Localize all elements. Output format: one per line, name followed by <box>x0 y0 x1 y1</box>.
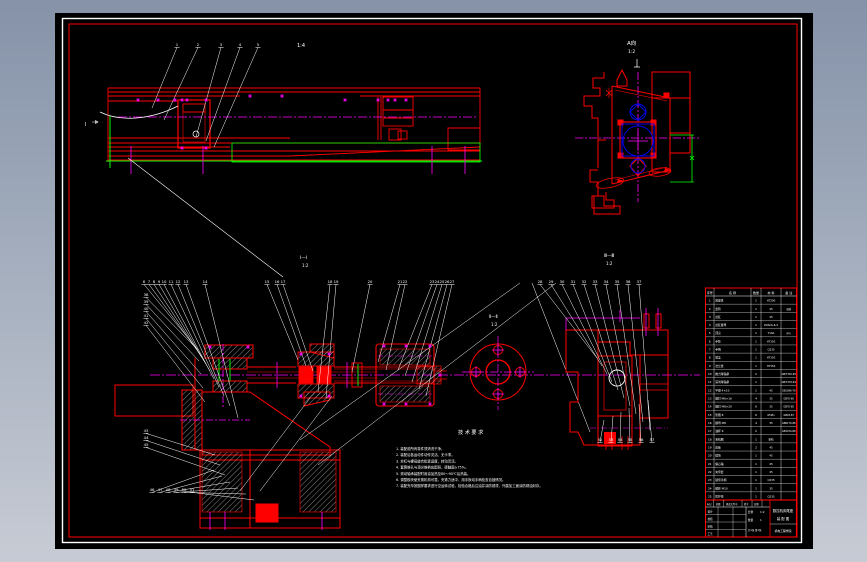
bom-cell-name: 套筒 <box>715 307 721 311</box>
bom-cell-name: 丝杠 <box>715 315 721 319</box>
organization: 机电工程学院 <box>775 529 792 533</box>
bom-cell-name: 尾座体 <box>715 299 724 303</box>
bom-cell-name: 推力球轴承 <box>715 372 729 376</box>
center-marker <box>327 352 331 356</box>
balloon-number: 42 <box>144 320 149 325</box>
bom-cell-qty: 6 <box>755 405 757 409</box>
bom-header: 材 料 <box>768 290 775 295</box>
balloon-number: 33 <box>593 279 598 284</box>
bom-cell-name: 平键 4×10 <box>715 388 729 392</box>
bom-cell-material: 45 <box>769 307 773 311</box>
balloon-number: 48 <box>166 487 171 492</box>
bom-cell-name: 深沟球轴承 <box>715 380 729 384</box>
bom-cell-name: 防护罩 <box>715 494 724 498</box>
bom-cell-material: Q235 <box>768 348 775 352</box>
note-line: 1. 装配前所有零件须清洗干净。 <box>396 446 444 451</box>
bom-cell-qty: 1 <box>755 388 757 392</box>
title-block-top-label: 处数 <box>716 502 721 506</box>
sheet-count: 共1张 第1张 <box>748 528 762 532</box>
bom-cell-qty: 1 <box>755 364 757 368</box>
balloon-number: 20 <box>368 279 373 284</box>
title-block-top-label: 日期 <box>754 502 759 506</box>
bom-cell-material: 45 <box>769 315 773 319</box>
bom-cell-no: 17 <box>708 429 712 433</box>
center-marker <box>343 98 347 102</box>
balloon-number: 54 <box>618 437 623 442</box>
bom-cell-qty: 1 <box>755 348 757 352</box>
bom-cell-qty: 2 <box>755 429 757 433</box>
bom-cell-note: GB70-85 <box>784 398 795 401</box>
bom-header: 数量 <box>753 290 759 295</box>
balloon-number: 11 <box>169 279 174 284</box>
bom-cell-material: 毛毡 <box>768 437 774 441</box>
balloon-number: 50 <box>182 487 187 492</box>
bom-cell-no: 1 <box>709 299 711 303</box>
balloon-number: 36 <box>626 279 631 284</box>
bom-cell-qty: 2 <box>755 372 757 376</box>
center-marker <box>404 98 408 102</box>
bom-cell-no: 15 <box>708 413 712 417</box>
bom-cell-note: 调质 <box>786 307 791 311</box>
center-marker <box>280 94 284 98</box>
bom-cell-name: 螺柱 M10 <box>715 486 728 490</box>
center-marker <box>382 344 386 348</box>
balloon-number: 30 <box>560 279 565 284</box>
balloon-number: 10 <box>162 279 167 284</box>
note-line: 5. 滚动轴承装配时用油加热至80～90℃后热装。 <box>396 471 470 476</box>
bom-cell-qty: 1 <box>755 323 757 327</box>
balloon-number: 44 <box>144 435 149 440</box>
bom-cell-qty: 6 <box>755 413 757 417</box>
bom-cell-material: 45 <box>769 454 773 458</box>
balloon-number: 56 <box>639 437 644 442</box>
bom-cell-qty: 4 <box>755 421 757 425</box>
bom-cell-material: 35 <box>769 405 773 409</box>
balloon-number: 18 <box>328 279 333 284</box>
note-line: 2. 装配后各运动件动作灵活、无卡滞。 <box>396 452 455 457</box>
balloon-number: 16 <box>275 279 280 284</box>
balloon-number: 39 <box>144 299 149 304</box>
center-marker <box>428 402 432 406</box>
title-block-role: 审核 <box>708 525 714 529</box>
view-flange-label: Ⅱ—Ⅱ <box>489 314 498 320</box>
bom-header: 名 称 <box>729 290 736 295</box>
bom-cell-name: 毛毡圈 <box>715 437 724 441</box>
center-marker <box>404 344 408 348</box>
bom-cell-qty: 1 <box>755 380 757 384</box>
bom-cell-qty: 1 <box>755 462 757 466</box>
bom-cell-no: 22 <box>708 470 712 474</box>
view-b-scale: 1:2 <box>606 261 613 266</box>
title-block-role: 校核 <box>708 517 714 521</box>
bom-cell-qty: 1 <box>755 478 757 482</box>
bom-cell-no: 6 <box>709 339 711 343</box>
bom-cell-qty: 2 <box>755 445 757 449</box>
bom-cell-no: 18 <box>708 437 712 441</box>
center-marker <box>438 373 442 377</box>
bom-cell-name: 油杯 6 <box>715 429 723 433</box>
bom-cell-note: 淬火 <box>786 331 791 335</box>
bom-cell-no: 24 <box>708 486 712 490</box>
center-marker <box>382 402 386 406</box>
balloon-number: 53 <box>609 437 614 442</box>
bom-cell-no: 23 <box>708 478 712 482</box>
balloon-number: 49 <box>174 487 179 492</box>
bom-cell-note: GB93-87 <box>784 414 795 417</box>
balloon-number: 37 <box>637 279 642 284</box>
center-marker <box>393 98 397 102</box>
bom-cell-material: Q235 <box>768 494 775 498</box>
balloon-number: 41 <box>144 313 149 318</box>
bom-cell-no: 4 <box>709 323 711 327</box>
view-flange-scale: 1:2 <box>491 322 498 327</box>
bom-cell-no: 16 <box>708 421 712 425</box>
bom-header: 备 注 <box>785 290 792 295</box>
bom-cell-note: GB6170-86 <box>782 422 796 425</box>
center-marker <box>156 98 160 102</box>
note-line: 4. 套筒锥孔与顶尖锥柄应配研，接触面≥75%。 <box>396 465 468 470</box>
bom-cell-no: 21 <box>708 462 712 466</box>
balloon-number: 29 <box>549 279 554 284</box>
center-marker <box>173 98 177 102</box>
balloon-number: 14 <box>203 279 208 284</box>
bom-cell-no: 19 <box>708 445 712 449</box>
title-block-role: 工艺 <box>708 532 714 536</box>
bom-cell-material: 35 <box>769 421 773 425</box>
bom-cell-material: 45 <box>769 388 773 392</box>
bom-cell-qty: 1 <box>755 454 757 458</box>
bom-cell-note: GB70-85 <box>784 406 795 409</box>
center-marker <box>180 146 184 150</box>
center-marker <box>246 345 250 349</box>
bom-cell-no: 25 <box>708 494 712 498</box>
notes-title: 技术要求 <box>458 428 485 436</box>
center-marker <box>404 402 408 406</box>
qty-value: 1 <box>760 518 762 522</box>
bom-cell-material: Q235 <box>768 478 775 482</box>
view-a-label: A向 <box>627 39 636 47</box>
bom-cell-qty: 1 <box>755 299 757 303</box>
bom-cell-no: 8 <box>709 356 711 360</box>
bom-cell-material: HT150 <box>767 339 776 343</box>
center-marker <box>248 94 252 98</box>
center-marker <box>208 345 212 349</box>
bom-cell-note: GB/T301-95 <box>782 373 797 376</box>
note-line: 7. 装配完毕按图样要求进行空运转试验，检验合格后注油并涂防锈漆，外露加工面涂防… <box>396 483 543 488</box>
view-a-scale: 1:2 <box>628 49 635 55</box>
bom-cell-qty: 1 <box>755 339 757 343</box>
center-marker <box>376 98 380 102</box>
center-marker <box>299 352 303 356</box>
bom-cell-name: 螺钉 M8×20 <box>715 405 732 409</box>
balloon-number: 12 <box>176 279 181 284</box>
qty-label: 数量 <box>748 518 754 522</box>
bom-cell-no: 11 <box>708 380 712 384</box>
bom-cell-material: HT150 <box>767 356 776 360</box>
bom-cell-material: 45 <box>769 470 773 474</box>
bom-cell-qty: 1 <box>755 470 757 474</box>
bom-cell-no: 12 <box>708 388 712 392</box>
bom-cell-name: 手轮 <box>715 339 721 343</box>
center-marker <box>327 394 331 398</box>
bom-cell-no: 3 <box>709 315 711 319</box>
bom-cell-qty: 1 <box>755 315 757 319</box>
view-main-scale: 1:2 <box>302 263 309 268</box>
bom-cell-name: 偏心轴 <box>715 462 724 466</box>
bom-cell-name: 垫圈 8 <box>715 413 723 417</box>
bom-cell-note: GB1154-89 <box>782 430 796 433</box>
bom-cell-material: ZQSn6-6-3 <box>764 323 778 327</box>
scale-value: 1:2 <box>760 510 765 514</box>
bom-cell-qty: 1 <box>755 307 757 311</box>
bom-cell-name: 螺母 M8 <box>715 421 726 425</box>
view-b-label: Ⅲ—Ⅲ <box>604 253 614 259</box>
bom-cell-no: 13 <box>708 397 712 401</box>
bom-cell-qty: 1 <box>755 486 757 490</box>
bom-cell-no: 9 <box>709 364 711 368</box>
balloon-number: 32 <box>582 279 587 284</box>
balloon-number: 34 <box>604 279 609 284</box>
balloon-number: 45 <box>144 442 149 447</box>
note-line: 6. 调整楔块使夹紧机构可靠，夹紧力适中，用手扳动手柄检查自锁情况。 <box>396 477 505 482</box>
title-block-top-label: 签字 <box>744 502 749 506</box>
bom-cell-name: 手柄 <box>715 348 721 352</box>
bom-cell-name: 顶尖 <box>715 331 721 335</box>
balloon-number: 40 <box>144 306 149 311</box>
bom-cell-qty: 4 <box>755 397 757 401</box>
balloon-number: 28 <box>538 279 543 284</box>
scale-label: 比例 <box>748 510 754 514</box>
balloon-number: 13 <box>184 279 189 284</box>
balloon-number: 47 <box>158 487 163 492</box>
bom-cell-no: 20 <box>708 454 712 458</box>
center-marker <box>185 98 189 102</box>
bom-cell-note: GB1096-79 <box>782 389 796 392</box>
bom-cell-material: HT200 <box>767 299 776 303</box>
center-marker <box>180 98 184 102</box>
view-main-label: Ⅰ—Ⅰ <box>300 255 307 261</box>
bom-cell-material: 35 <box>769 397 773 401</box>
bom-cell-material: 65Mn <box>767 413 775 417</box>
view-side-scale: 1:4 <box>297 43 305 49</box>
bom-cell-name: 压板 <box>715 445 721 449</box>
bom-cell-material: 45 <box>769 462 773 466</box>
bom-cell-material: HT150 <box>767 364 776 368</box>
balloon-number: 38 <box>144 292 149 297</box>
balloon-number: 15 <box>265 279 270 284</box>
balloon-number: 52 <box>598 437 603 442</box>
balloon-number: 31 <box>571 279 576 284</box>
title-block-top-label: 更改文件号 <box>726 502 738 506</box>
center-marker <box>204 98 208 102</box>
bom-cell-name: 锁紧手柄 <box>715 478 726 482</box>
bom-cell-qty: 1 <box>755 356 757 360</box>
bom-cell-name: 螺钉 M6×16 <box>715 397 732 401</box>
bom-cell-no: 10 <box>708 372 712 376</box>
balloon-number: 46 <box>150 487 155 492</box>
bom-cell-name: 端盖 <box>715 356 721 360</box>
drawing-title-line1: 数控机床尾座 <box>773 508 794 513</box>
bom-cell-qty: 1 <box>755 437 757 441</box>
title-block-role: 设计 <box>708 510 714 514</box>
note-line: 3. 丝杠与螺母旋合松紧适度，转动灵活。 <box>396 458 458 463</box>
bom-cell-name: 夹紧套 <box>715 470 724 474</box>
title-block-top-label: 标记 <box>707 502 712 506</box>
bom-cell-name: 法兰盘 <box>715 364 724 368</box>
bom-cell-qty: 1 <box>755 494 757 498</box>
balloon-number: 27 <box>450 279 455 284</box>
center-marker <box>136 98 140 102</box>
bom-cell-qty: 1 <box>755 331 757 335</box>
balloon-number: 43 <box>144 428 149 433</box>
balloon-number: 35 <box>615 279 620 284</box>
drawing-title-line2: 装 配 图 <box>777 516 790 521</box>
balloon-number: 22 <box>403 279 408 284</box>
balloon-number: 57 <box>650 437 655 442</box>
bom-cell-no: 2 <box>709 307 711 311</box>
bom-cell-material: T10A <box>768 331 775 335</box>
cad-drawing-viewport: 1:4 Ⅰ A向 1:2 <box>0 0 867 562</box>
balloon-number: 19 <box>334 279 339 284</box>
balloon-number: 17 <box>281 279 286 284</box>
bom-cell-name: 丝杠螺母 <box>715 323 726 327</box>
center-marker <box>204 146 208 150</box>
center-marker <box>299 394 303 398</box>
bom-cell-no: 14 <box>708 405 712 409</box>
center-marker <box>386 98 390 102</box>
bom-cell-note: GB/T276-94 <box>782 381 797 384</box>
bom-header: 序号 <box>707 290 713 295</box>
view-side-section-mark: Ⅰ <box>85 122 86 128</box>
bom-cell-material: 45 <box>769 445 773 449</box>
bom-cell-no: 7 <box>709 348 711 352</box>
bom-cell-material: 35 <box>769 486 773 490</box>
bom-cell-no: 5 <box>709 331 711 335</box>
bom-cell-name: 楔块 <box>715 454 721 458</box>
center-marker <box>428 344 432 348</box>
balloon-number: 51 <box>190 487 195 492</box>
balloon-number: 55 <box>628 437 633 442</box>
